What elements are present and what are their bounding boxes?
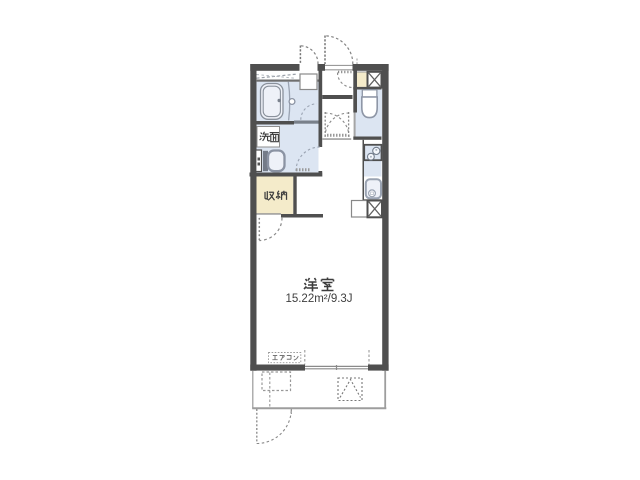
svg-text:15.22m²/9.3J: 15.22m²/9.3J [285, 293, 352, 305]
